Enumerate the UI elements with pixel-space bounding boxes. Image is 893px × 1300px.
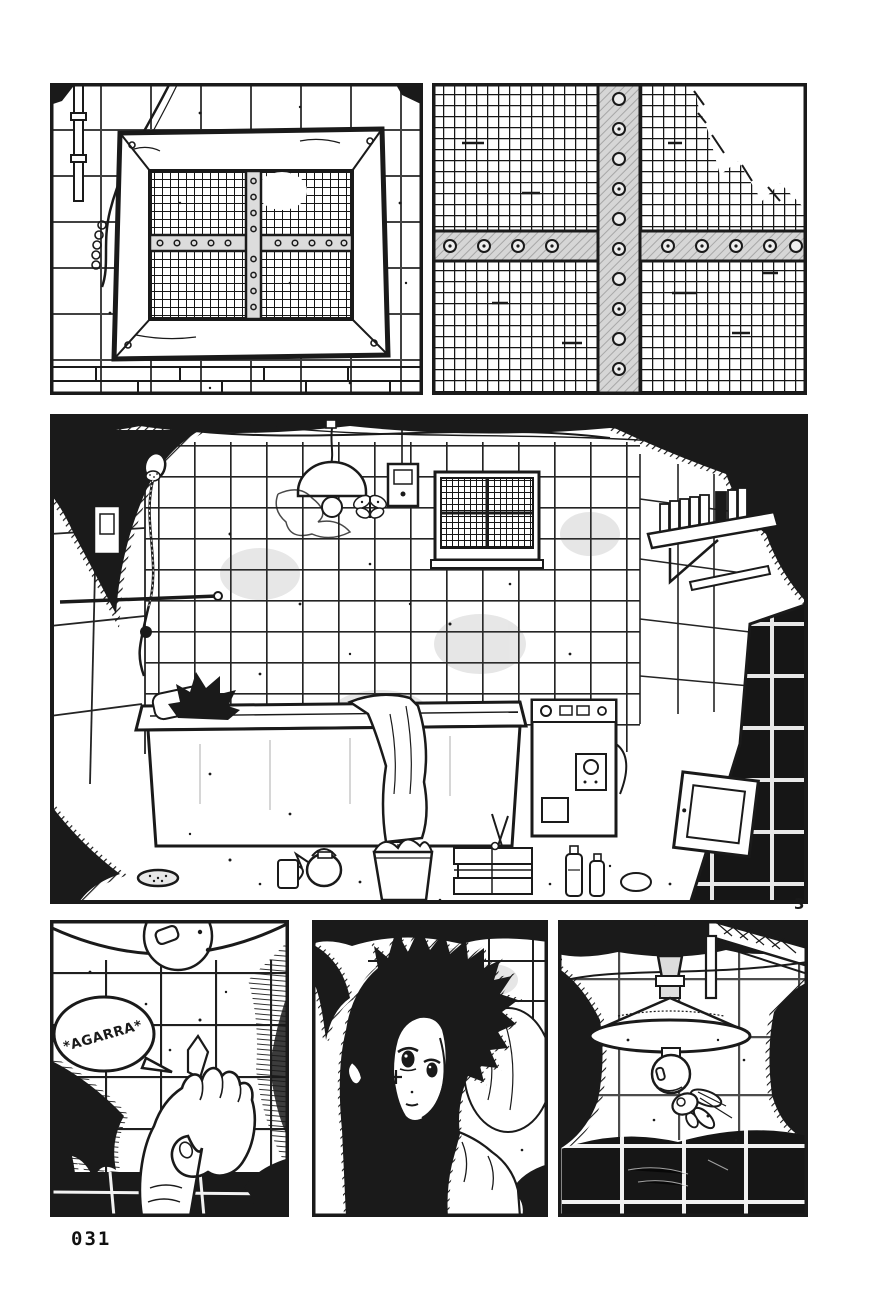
panel-hand-grip: *AGARRA*	[50, 920, 289, 1217]
mesh-vent	[431, 472, 543, 568]
panel-face-art	[312, 920, 548, 1217]
mesh-hole	[257, 172, 307, 210]
washing-machine	[532, 700, 626, 836]
sponge	[621, 873, 651, 891]
panel-bathroom-art	[50, 414, 808, 904]
leaning-cabinet	[674, 772, 759, 857]
panel-window-frame-art	[50, 83, 423, 395]
panel-mesh-closeup	[432, 83, 807, 395]
floor-drain	[138, 870, 178, 886]
panel-bathroom-wide	[50, 414, 808, 904]
light-bulb	[322, 497, 342, 517]
panel-number-marker: 3	[794, 895, 804, 913]
panel-mesh-art	[432, 83, 807, 395]
panel-hanging-lamp	[558, 920, 808, 1217]
panel-lamp-art	[558, 920, 808, 1217]
manga-page: *AGARRA*	[0, 0, 893, 1300]
panel-hand-art: *AGARRA*	[50, 920, 289, 1217]
panel-window-frame	[50, 83, 423, 395]
panel-face-closeup	[312, 920, 548, 1217]
bucket	[374, 839, 432, 900]
page-number: 031	[71, 1228, 111, 1250]
bathtub	[136, 702, 526, 846]
